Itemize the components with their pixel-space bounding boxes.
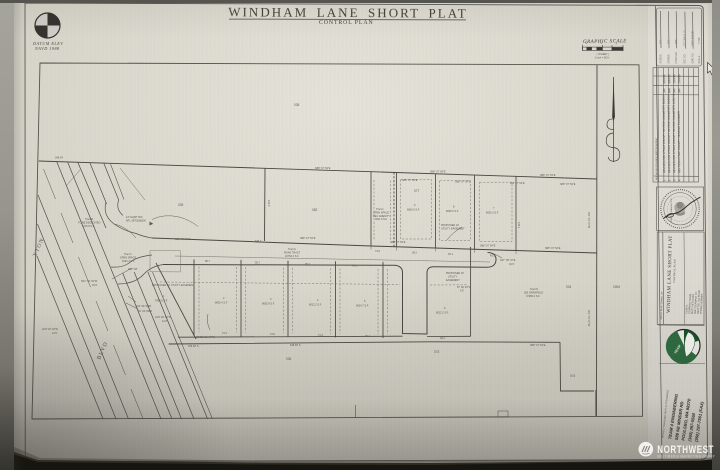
svg-text:MULTIMEDIA MARKETING GROUP: MULTIMEDIA MARKETING GROUP — [658, 454, 716, 458]
